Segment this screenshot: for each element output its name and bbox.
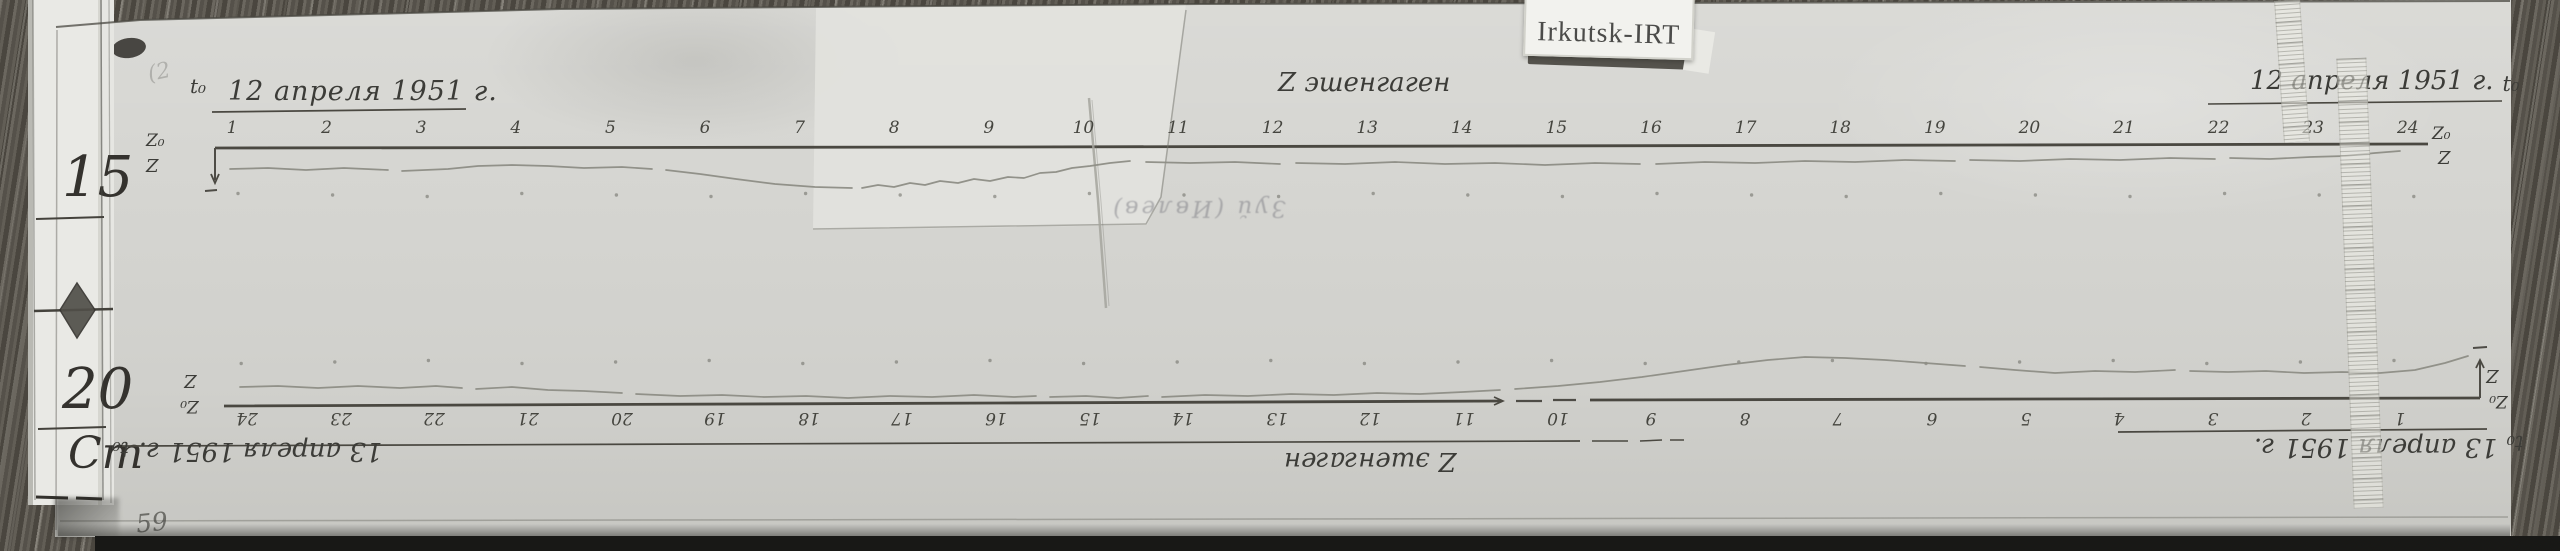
bottom-black-band bbox=[95, 536, 2560, 551]
hour-label: 21 bbox=[517, 408, 539, 428]
hour-dot bbox=[899, 193, 902, 196]
hour-label: 7 bbox=[1833, 408, 1844, 428]
hour-dot bbox=[1655, 192, 1658, 195]
paper-fold-line bbox=[60, 517, 2508, 521]
top-t0-left: t₀ bbox=[190, 76, 206, 96]
hour-dot bbox=[2318, 193, 2321, 196]
bottom-z-trace bbox=[2190, 356, 2468, 373]
hour-label: 22 bbox=[2208, 118, 2230, 138]
bottom-z-trace bbox=[636, 394, 1036, 398]
hour-dot bbox=[1466, 193, 1469, 196]
hour-dot bbox=[331, 193, 334, 196]
hour-label: 8 bbox=[889, 118, 900, 138]
hour-label: 15 bbox=[1079, 408, 1101, 428]
bottom-z-left: Z bbox=[184, 371, 197, 389]
hour-dot bbox=[2412, 195, 2415, 198]
hour-label: 9 bbox=[983, 118, 994, 138]
hour-dot bbox=[1550, 359, 1553, 362]
hour-label: 4 bbox=[510, 118, 521, 138]
hour-label: 14 bbox=[1172, 408, 1194, 428]
hour-dot bbox=[1269, 359, 1272, 362]
top-z-trace bbox=[230, 168, 388, 170]
hour-label: 13 bbox=[1266, 408, 1288, 428]
bottom-baseline bbox=[1590, 398, 2480, 400]
hour-label: 12 bbox=[1262, 118, 1284, 138]
hour-label: 19 bbox=[1924, 118, 1946, 138]
bottom-z-trace bbox=[1050, 396, 1148, 398]
hour-label: 9 bbox=[1646, 408, 1657, 428]
ruler-edge-line bbox=[101, 0, 103, 500]
hour-label: 14 bbox=[1451, 118, 1473, 138]
hour-label: 6 bbox=[1927, 408, 1938, 428]
hour-dot bbox=[804, 192, 807, 195]
hour-dot bbox=[988, 359, 991, 362]
hour-dot bbox=[1176, 360, 1179, 363]
hour-label: 20 bbox=[611, 408, 633, 428]
hour-dot bbox=[1456, 360, 1459, 363]
top-z-left: Z bbox=[146, 158, 159, 176]
hour-dot bbox=[1831, 359, 1834, 362]
top-z-trace bbox=[402, 165, 652, 171]
pencil-scribble: (2 bbox=[146, 60, 173, 86]
bottom-underline-dash bbox=[1640, 440, 1662, 441]
hour-label: 16 bbox=[1640, 118, 1662, 138]
hour-dot bbox=[427, 359, 430, 362]
hour-dot bbox=[1088, 192, 1091, 195]
hour-label: 5 bbox=[605, 118, 616, 138]
hour-label: 5 bbox=[2020, 408, 2031, 428]
paper-left-edge bbox=[56, 30, 57, 530]
hour-dot bbox=[2392, 359, 2395, 362]
hour-dot bbox=[709, 195, 712, 198]
hour-dot bbox=[2034, 193, 2037, 196]
bottom-z-right: Z bbox=[2486, 366, 2499, 384]
paper-top-edge bbox=[56, 1, 2510, 27]
top-z-trace bbox=[1656, 160, 1955, 164]
hour-label: 23 bbox=[330, 408, 352, 428]
hour-label: 4 bbox=[2114, 408, 2125, 428]
hour-label: 2 bbox=[2301, 408, 2312, 428]
hour-dot bbox=[708, 359, 711, 362]
hour-dot bbox=[993, 195, 996, 198]
hour-dot bbox=[1372, 192, 1375, 195]
bottom-date-right-row: t₀ 13 апреля 1951 г. bbox=[2254, 434, 2523, 460]
hour-label: 18 bbox=[1829, 118, 1851, 138]
hour-label: 3 bbox=[2207, 408, 2218, 428]
top-z-trace bbox=[1296, 162, 1640, 165]
hour-dot bbox=[1845, 195, 1848, 198]
bottom-date-left: 13 апреля 1951 г. bbox=[139, 438, 383, 464]
hour-dot bbox=[2223, 192, 2226, 195]
hour-dot bbox=[520, 192, 523, 195]
hour-label: 24 bbox=[236, 408, 258, 428]
top-z-trace bbox=[1970, 158, 2215, 161]
station-card: Irkutsk-IRT bbox=[1523, 0, 1695, 60]
hour-label: 2 bbox=[321, 118, 332, 138]
hour-dot bbox=[2018, 360, 2021, 363]
top-z0-right: Z₀ bbox=[2432, 126, 2451, 143]
hour-dot bbox=[895, 360, 898, 363]
bottom-z-trace bbox=[1162, 390, 1500, 397]
hour-label: 3 bbox=[416, 118, 427, 138]
hour-dot bbox=[2205, 362, 2208, 365]
top-z-right: Z bbox=[2438, 150, 2451, 168]
bottom-z0-left: Z₀ bbox=[180, 397, 199, 414]
hour-label: 22 bbox=[424, 408, 446, 428]
hour-label: 17 bbox=[1735, 118, 1757, 138]
ruler-diamond-icon bbox=[60, 283, 95, 338]
bottom-baseline bbox=[224, 401, 1502, 406]
top-z-trace bbox=[2230, 151, 2400, 159]
hour-dot bbox=[240, 362, 243, 365]
hour-dot bbox=[2112, 359, 2115, 362]
ruler-div-line bbox=[38, 427, 106, 429]
bottom-z-trace bbox=[240, 386, 462, 388]
hour-label: 10 bbox=[1073, 118, 1095, 138]
ruler-div-line bbox=[36, 217, 104, 219]
hour-dot bbox=[1750, 193, 1753, 196]
hour-dot bbox=[426, 195, 429, 198]
hour-label: 10 bbox=[1547, 408, 1569, 428]
hour-label: 21 bbox=[2113, 118, 2135, 138]
magnetogram-scan: 15 20 Cm bbox=[0, 0, 2560, 551]
hour-label: 11 bbox=[1167, 118, 1189, 138]
hour-label: 8 bbox=[1739, 408, 1750, 428]
hour-dot bbox=[1082, 362, 1085, 365]
top-t0-right: t₀ bbox=[2503, 74, 2520, 95]
hour-dot bbox=[236, 192, 239, 195]
top-z-trace bbox=[862, 161, 1130, 188]
hour-dot bbox=[1644, 362, 1647, 365]
hour-dot bbox=[614, 360, 617, 363]
bottom-t0-left: t₀ bbox=[112, 438, 129, 459]
station-card-label: Irkutsk-IRT bbox=[1537, 16, 1681, 58]
top-date-left: 12 апреля 1951 г. bbox=[228, 78, 498, 105]
hour-label: 19 bbox=[704, 408, 726, 428]
hour-label: 20 bbox=[2019, 118, 2041, 138]
bottom-z-trace bbox=[476, 387, 622, 393]
ruler-edge-line bbox=[109, 0, 111, 503]
top-date-underline bbox=[212, 109, 466, 112]
hour-dot bbox=[1363, 362, 1366, 365]
hour-label: 7 bbox=[794, 118, 805, 138]
hour-dot bbox=[615, 193, 618, 196]
bottom-t0-right: t₀ bbox=[2507, 432, 2524, 453]
bottom-instrument-label: Z эшенгаген bbox=[1284, 448, 1456, 474]
top-instrument-label: Z эшенгаген bbox=[1278, 70, 1450, 96]
hour-dot bbox=[333, 360, 336, 363]
hour-label: 13 bbox=[1356, 118, 1378, 138]
faint-note: Зуй (Ивлев) bbox=[1098, 196, 1298, 219]
ruler-edge-line bbox=[33, 0, 35, 500]
top-scale-dash bbox=[205, 190, 217, 191]
hour-dot bbox=[520, 362, 523, 365]
bottom-z-trace bbox=[1980, 367, 2175, 373]
hour-label: 12 bbox=[1360, 408, 1382, 428]
hour-label: 24 bbox=[2397, 118, 2419, 138]
bottom-z0-right: Z₀ bbox=[2489, 392, 2508, 409]
hour-label: 1 bbox=[227, 118, 238, 138]
hour-label: 6 bbox=[700, 118, 711, 138]
trace-layer bbox=[230, 151, 2468, 398]
hour-dot bbox=[2299, 360, 2302, 363]
paper-bottom-shadow bbox=[58, 524, 2510, 536]
hour-dot bbox=[2128, 195, 2131, 198]
hour-dot bbox=[1561, 195, 1564, 198]
hour-label: 16 bbox=[985, 408, 1007, 428]
hour-label: 1 bbox=[2395, 408, 2406, 428]
top-z0-left: Z₀ bbox=[146, 133, 165, 150]
bottom-date-left-row: 13 апреля 1951 г. t₀ bbox=[112, 438, 382, 464]
bottom-scale-dash bbox=[2473, 347, 2487, 348]
hour-label: 17 bbox=[892, 408, 914, 428]
top-baseline bbox=[215, 144, 2428, 148]
hour-label: 11 bbox=[1453, 408, 1475, 428]
hour-dot bbox=[801, 362, 804, 365]
top-z-trace bbox=[666, 170, 852, 188]
hour-label: 15 bbox=[1546, 118, 1568, 138]
hour-label: 18 bbox=[798, 408, 820, 428]
hour-dot bbox=[1939, 192, 1942, 195]
